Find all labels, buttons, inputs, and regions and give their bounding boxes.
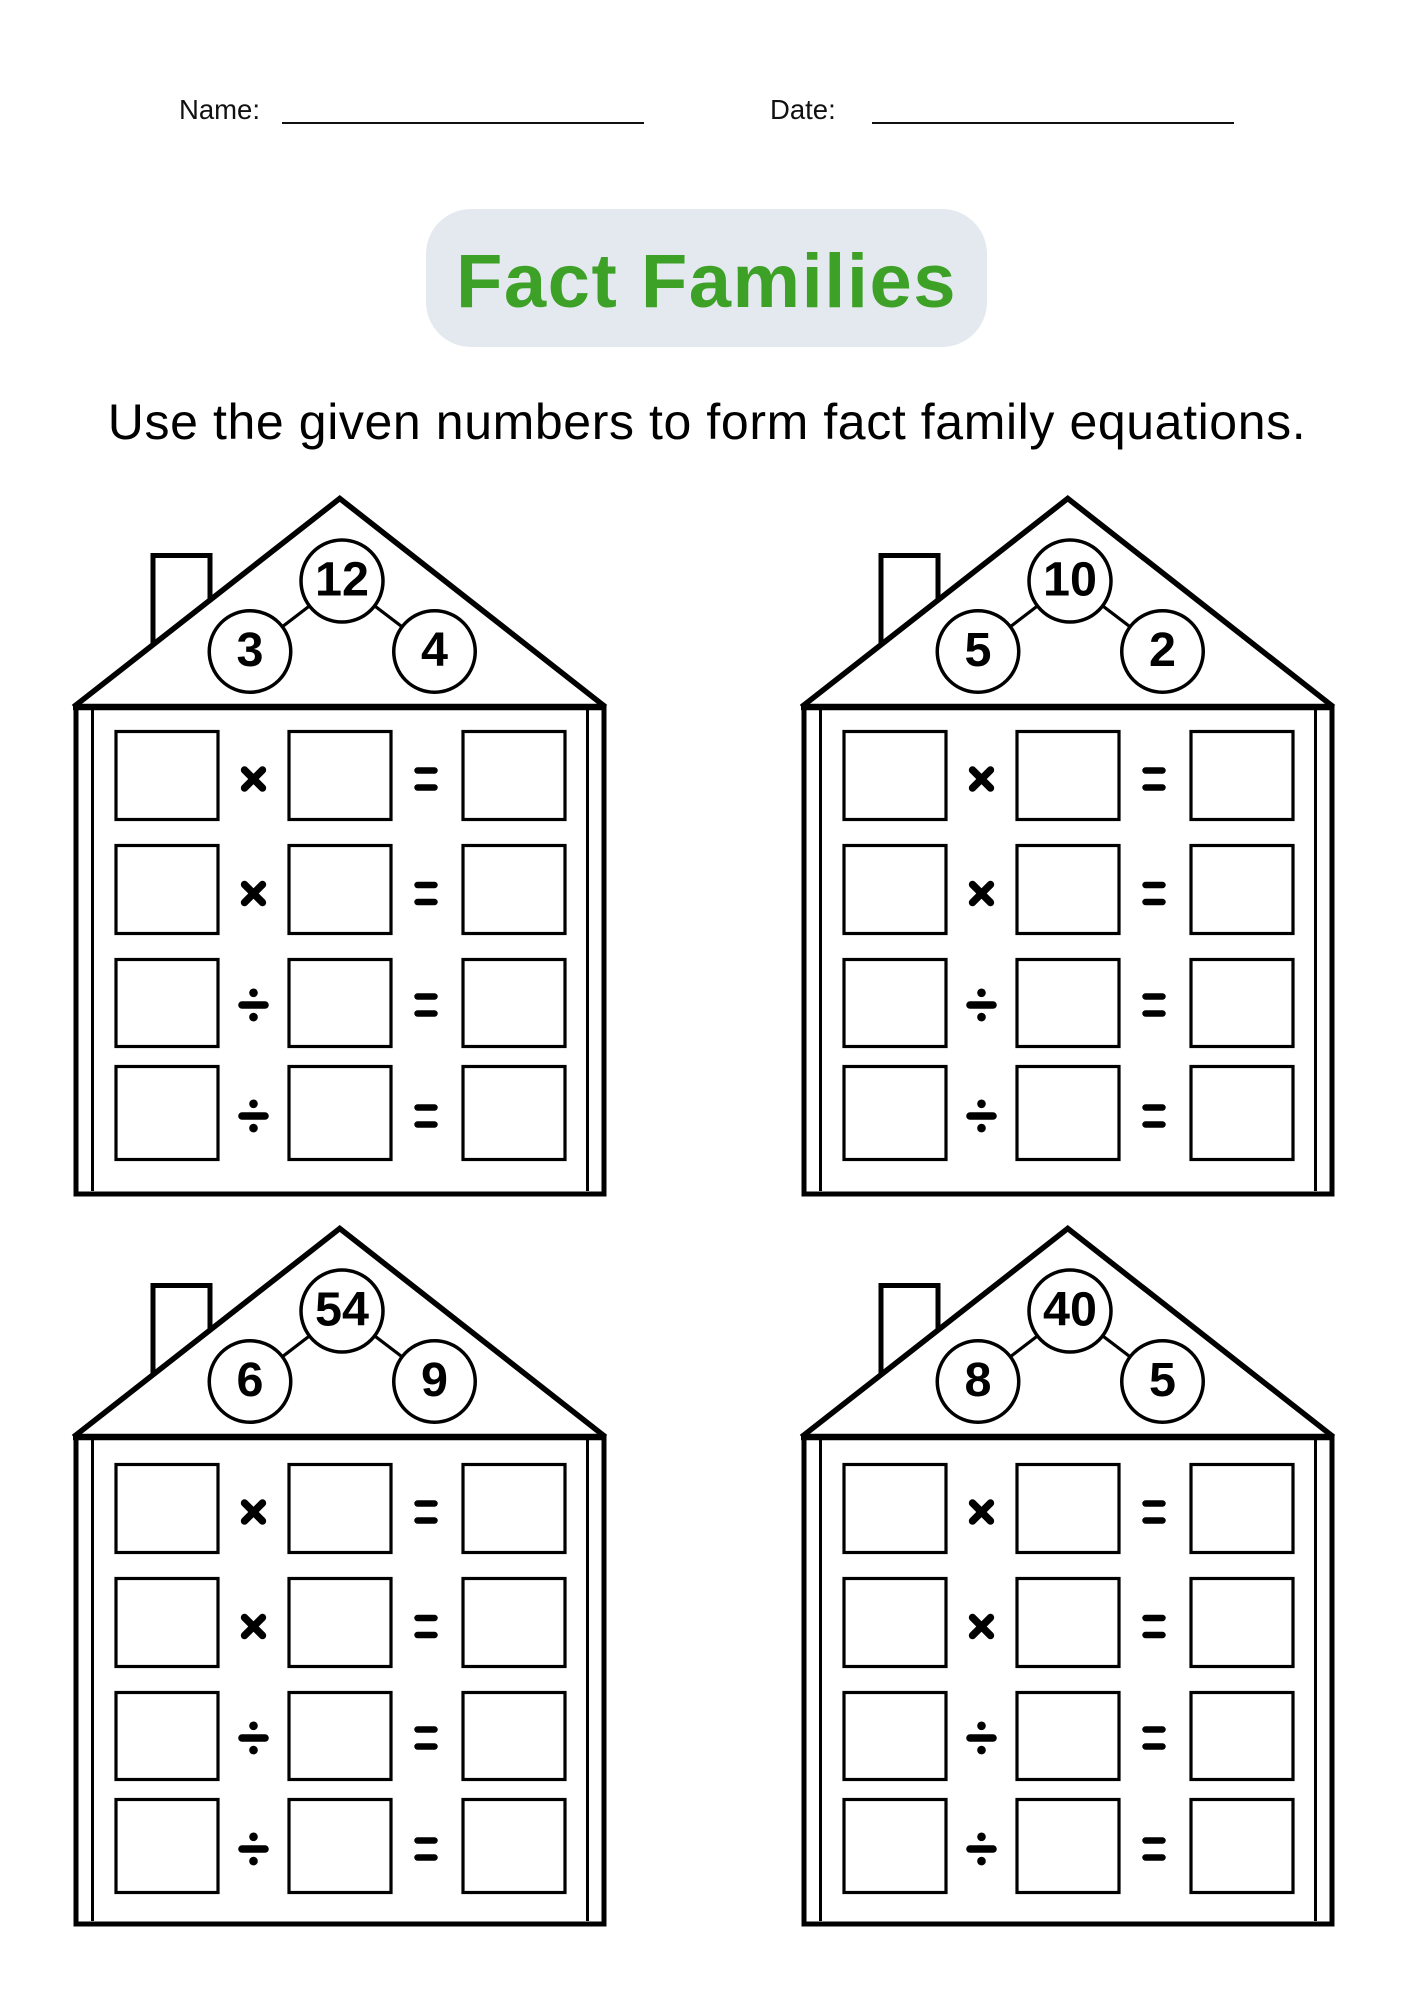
svg-text:2: 2	[1149, 623, 1176, 677]
svg-text:10: 10	[1043, 553, 1097, 607]
svg-text:54: 54	[315, 1283, 369, 1337]
svg-text:5: 5	[1149, 1353, 1176, 1407]
svg-text:40: 40	[1043, 1283, 1097, 1337]
svg-text:6: 6	[237, 1353, 264, 1407]
svg-text:5: 5	[965, 623, 992, 677]
svg-text:12: 12	[315, 553, 369, 607]
svg-text:3: 3	[237, 623, 264, 677]
svg-text:9: 9	[421, 1353, 448, 1407]
svg-text:4: 4	[421, 623, 448, 677]
svg-text:8: 8	[965, 1353, 992, 1407]
